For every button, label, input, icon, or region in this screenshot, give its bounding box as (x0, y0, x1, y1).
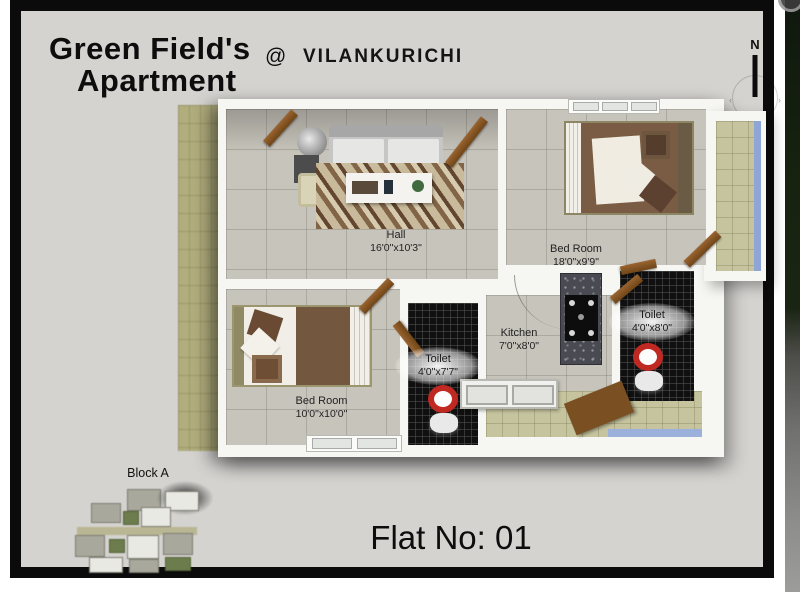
room-size: 10'0"x10'0" (259, 408, 384, 421)
room-size: 4'0"x7'7" (399, 366, 477, 379)
table-tray (352, 181, 378, 194)
burner (569, 300, 575, 306)
room-size: 4'0"x8'0" (613, 322, 691, 335)
north-arrow-icon (753, 55, 758, 97)
mini-building (91, 503, 121, 523)
block-label: Block A (89, 466, 207, 480)
bed-bedroom-1 (564, 121, 694, 215)
toilet-fixture (631, 343, 667, 395)
blanket (296, 307, 352, 385)
room-name: Bed Room (511, 243, 641, 256)
toilet-1-label: Toilet 4'0"x7'7" (395, 347, 481, 385)
room-name: Toilet (399, 353, 477, 366)
sink-basin (512, 385, 554, 405)
mattress-edge (566, 123, 581, 213)
mattress-edge (350, 307, 370, 385)
sofa-back (329, 125, 443, 137)
room-size: 18'0"x9'9" (511, 256, 641, 269)
plan-card: Green Field's Apartment @ VILANKURICHI N… (10, 0, 774, 578)
utility-sink (460, 379, 558, 409)
window-bedroom-1 (568, 99, 660, 114)
room-name: Kitchen (474, 327, 564, 340)
bedroom-1-label: Bed Room 18'0"x9'9" (511, 243, 641, 269)
mini-building (129, 559, 159, 573)
toilet-fixture (426, 385, 462, 437)
mini-lawn (109, 539, 125, 553)
balcony-glass-railing (754, 121, 761, 271)
background-edge-strip (785, 0, 800, 592)
mini-building (127, 535, 159, 559)
mini-building (75, 535, 105, 557)
kitchen-label: Kitchen 7'0"x8'0" (474, 327, 564, 353)
burner-knob (578, 314, 584, 320)
window-pane (357, 438, 397, 449)
hall-label: Hall 16'0"x10'3" (326, 229, 466, 255)
toilet-tank (430, 413, 458, 433)
bedroom-2-label: Bed Room 10'0"x10'0" (259, 395, 384, 421)
stove (565, 295, 598, 341)
table-plant (412, 180, 424, 192)
window-bedroom-2 (306, 435, 402, 452)
floor-lamp (297, 127, 327, 157)
mini-building (89, 557, 123, 573)
window-pane (602, 102, 628, 111)
pillow (642, 131, 670, 159)
window-pane (573, 102, 599, 111)
room-name: Toilet (613, 309, 691, 322)
headboard (678, 123, 692, 213)
balcony-1 (716, 121, 758, 271)
floor-plan: Hall 16'0"x10'3" Bed Room 18'0"x9'9" Bed… (176, 99, 786, 461)
flat-number-text: Flat No: 01 (321, 519, 581, 557)
table-book (384, 180, 393, 194)
title-line1: Green Field's (49, 31, 251, 67)
at-symbol: @ (265, 45, 286, 69)
location-text: VILANKURICHI (303, 46, 463, 68)
burner (588, 300, 594, 306)
toilet-tank (635, 371, 663, 391)
toilet-seat (428, 385, 458, 413)
window-pane (312, 438, 352, 449)
mini-building (141, 507, 171, 527)
corner-button-artifact (778, 0, 800, 12)
coffee-table (346, 173, 432, 203)
title-line2: Apartment (77, 63, 237, 99)
pillow (252, 355, 282, 383)
burner (588, 330, 594, 336)
mini-building (163, 533, 193, 555)
toilet-seat (633, 343, 663, 371)
room-name: Hall (326, 229, 466, 242)
mini-lawn (165, 557, 191, 571)
mini-lawn (123, 511, 139, 525)
burner (569, 330, 575, 336)
utility-window-glass (608, 429, 702, 437)
block-site-thumbnail (69, 481, 221, 575)
room-size: 7'0"x8'0" (474, 340, 564, 353)
window-pane (631, 102, 657, 111)
sink-basin (466, 385, 508, 405)
bed-bedroom-2 (232, 305, 372, 387)
room-name: Bed Room (259, 395, 384, 408)
room-size: 16'0"x10'3" (326, 242, 466, 255)
north-label: N (750, 37, 759, 52)
toilet-2-label: Toilet 4'0"x8'0" (609, 303, 695, 341)
